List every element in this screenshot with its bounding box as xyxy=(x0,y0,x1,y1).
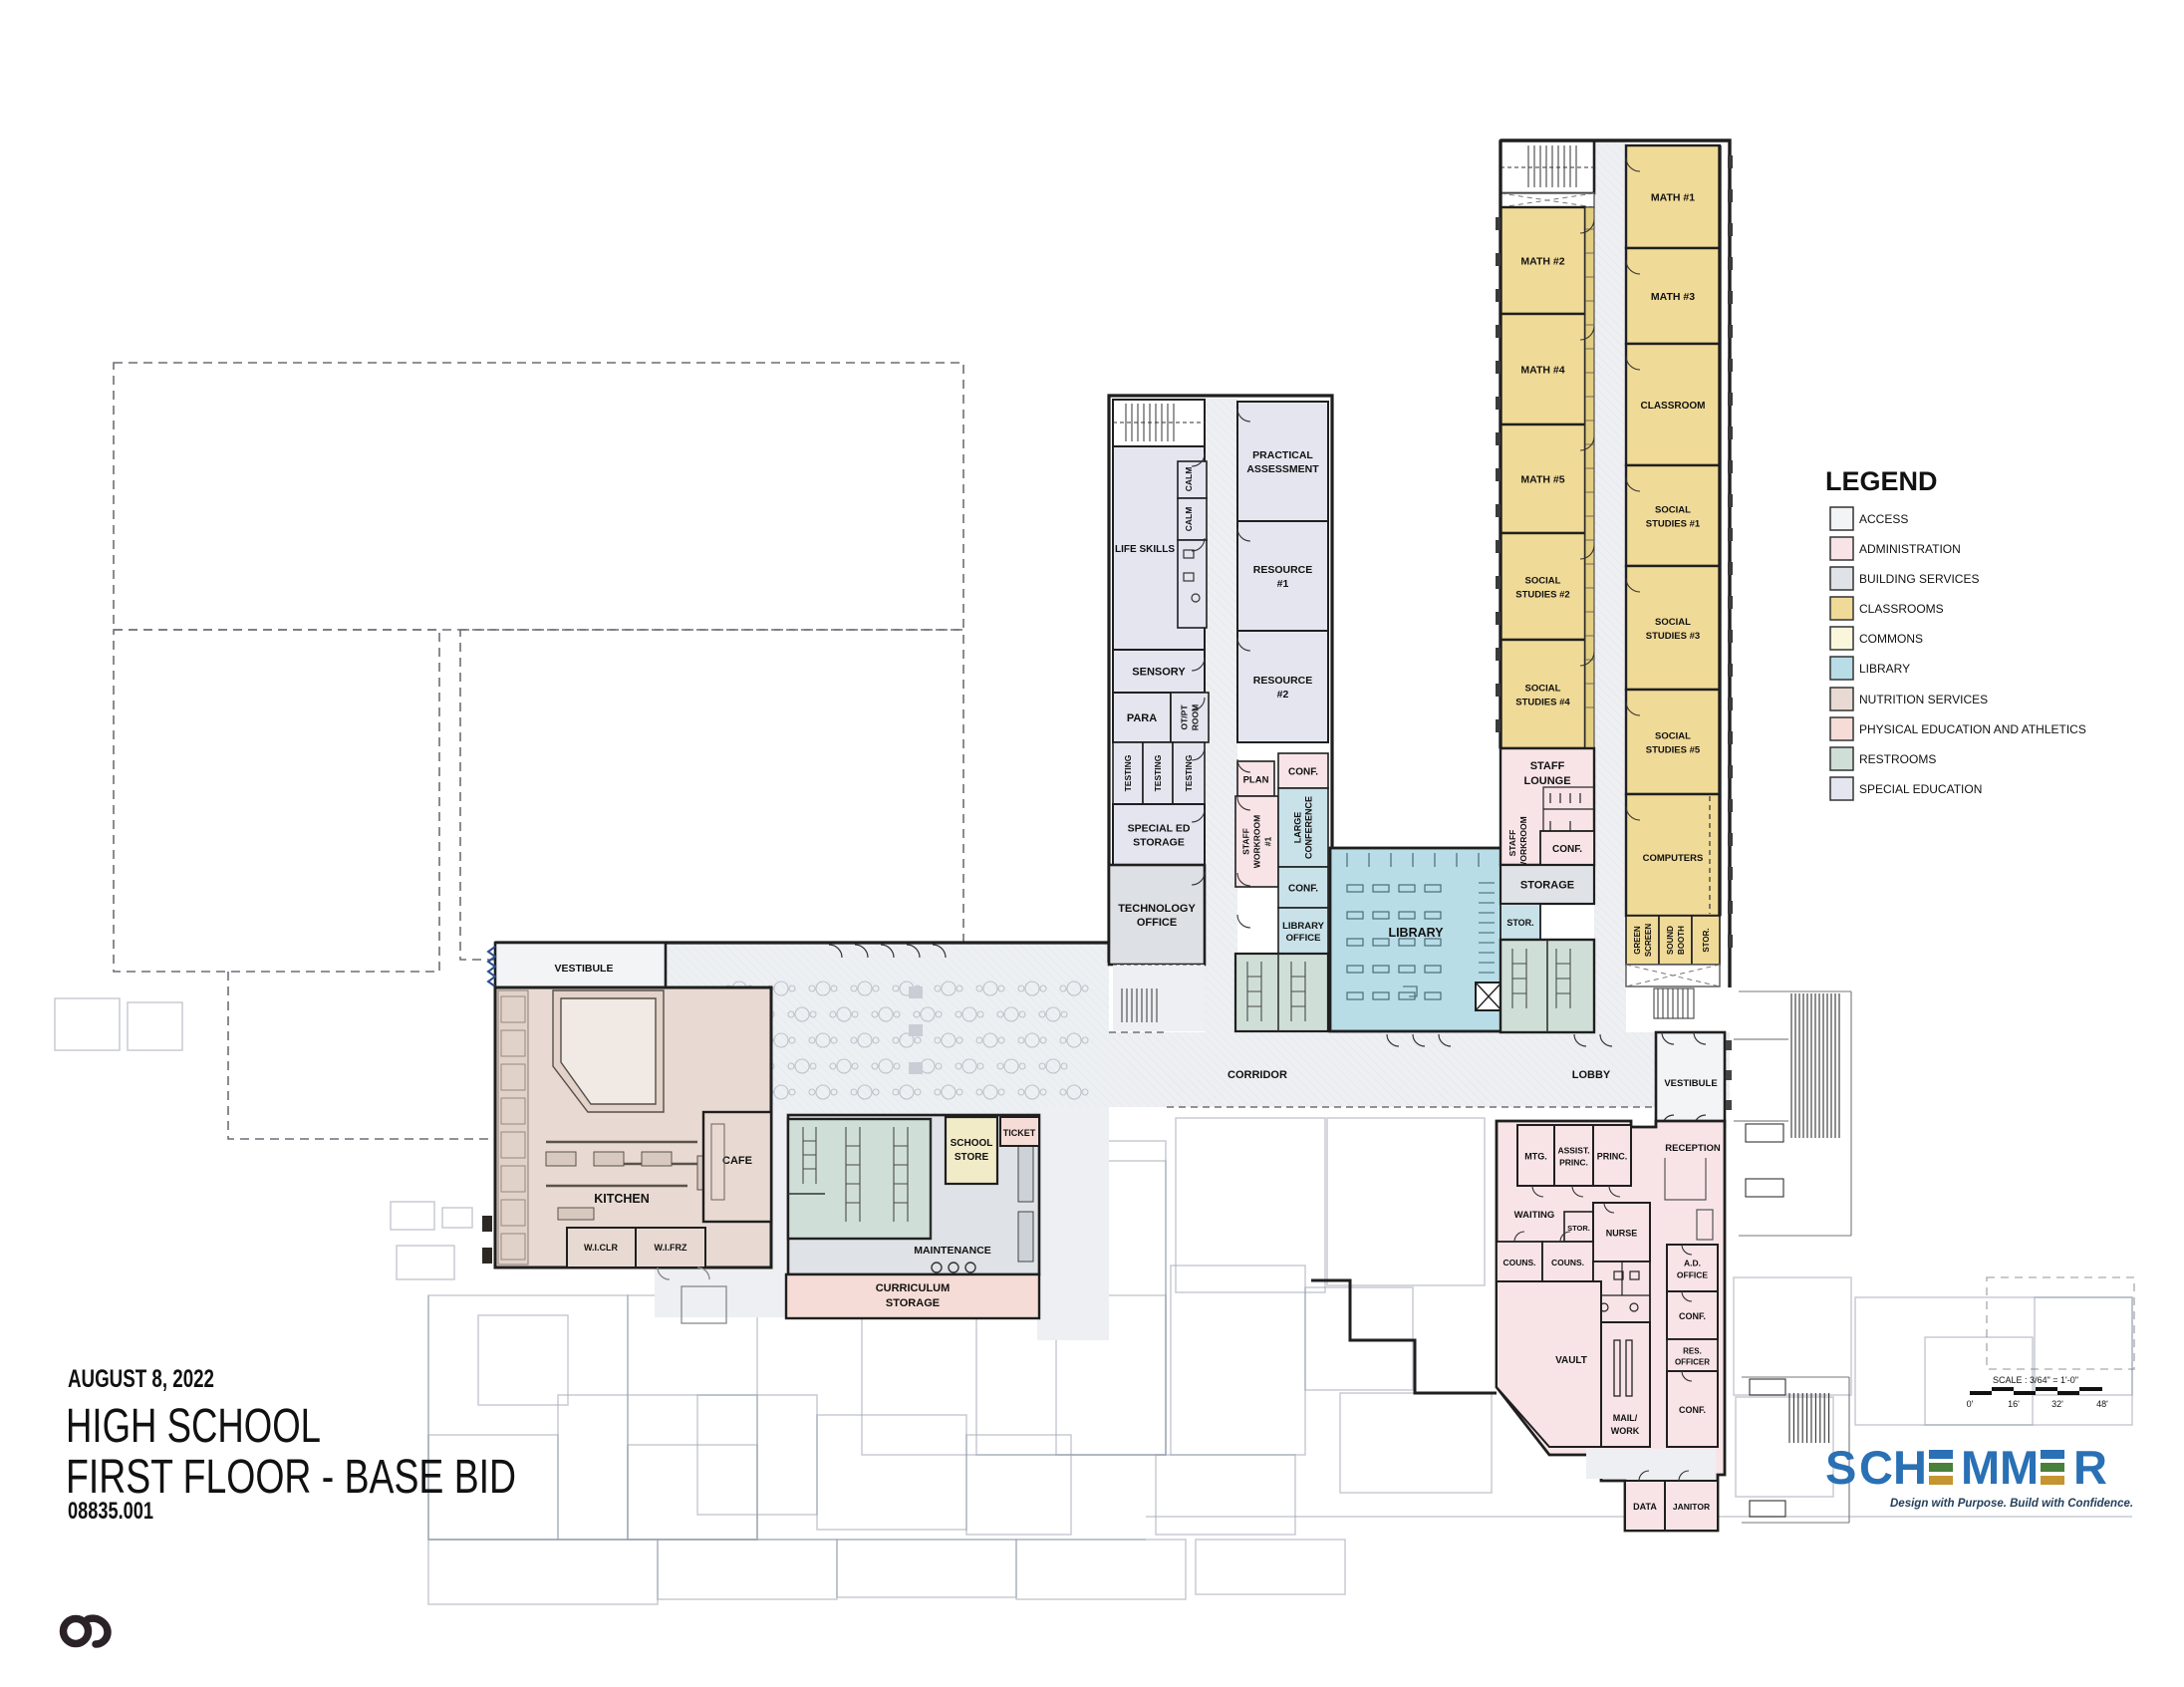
svg-text:COMPUTERS: COMPUTERS xyxy=(1643,853,1704,864)
svg-text:TESTING: TESTING xyxy=(1153,754,1163,791)
svg-text:48': 48' xyxy=(2096,1399,2108,1409)
svg-text:C: C xyxy=(1859,1441,1893,1494)
svg-text:#1: #1 xyxy=(1263,837,1273,847)
svg-text:TICKET: TICKET xyxy=(1003,1128,1036,1138)
svg-text:KITCHEN: KITCHEN xyxy=(594,1192,650,1206)
svg-text:CURRICULUM: CURRICULUM xyxy=(876,1282,951,1294)
svg-text:SCREEN: SCREEN xyxy=(1644,924,1653,958)
svg-text:LIBRARY: LIBRARY xyxy=(1859,662,1910,676)
svg-text:BUILDING SERVICES: BUILDING SERVICES xyxy=(1859,572,1979,586)
svg-text:MTG.: MTG. xyxy=(1524,1152,1547,1162)
svg-text:ASSIST.: ASSIST. xyxy=(1557,1146,1589,1156)
svg-text:FIRST FLOOR - BASE BID: FIRST FLOOR - BASE BID xyxy=(66,1451,516,1504)
svg-text:GREEN: GREEN xyxy=(1633,926,1642,955)
svg-text:WAITING: WAITING xyxy=(1514,1210,1555,1221)
svg-text:MATH #1: MATH #1 xyxy=(1651,192,1695,204)
svg-text:CAFE: CAFE xyxy=(722,1155,752,1167)
svg-text:SCALE : 3/64" = 1'-0": SCALE : 3/64" = 1'-0" xyxy=(1993,1375,2078,1385)
svg-text:WORKROOM: WORKROOM xyxy=(1252,815,1262,868)
svg-text:PRINC.: PRINC. xyxy=(1597,1152,1628,1162)
svg-text:SOUND: SOUND xyxy=(1666,926,1675,955)
svg-text:LOBBY: LOBBY xyxy=(1572,1069,1611,1081)
svg-text:LIFE SKILLS: LIFE SKILLS xyxy=(1115,544,1175,555)
svg-text:CONF.: CONF. xyxy=(1679,1405,1706,1415)
svg-text:RESOURCE: RESOURCE xyxy=(1253,675,1313,687)
svg-text:SOCIAL: SOCIAL xyxy=(1655,505,1691,516)
svg-text:STOR.: STOR. xyxy=(1567,1224,1590,1233)
svg-text:RESTROOMS: RESTROOMS xyxy=(1859,752,1936,766)
svg-text:RES.: RES. xyxy=(1683,1347,1702,1356)
svg-text:JANITOR: JANITOR xyxy=(1673,1502,1710,1512)
svg-text:CLASSROOMS: CLASSROOMS xyxy=(1859,602,1944,616)
svg-text:STORAGE: STORAGE xyxy=(1520,880,1574,892)
svg-text:ACCESS: ACCESS xyxy=(1859,512,1908,526)
svg-text:LIBRARY: LIBRARY xyxy=(1282,921,1325,932)
svg-text:COUNS.: COUNS. xyxy=(1502,1258,1535,1267)
svg-text:OFFICE: OFFICE xyxy=(1137,917,1177,929)
svg-text:OFFICE: OFFICE xyxy=(1677,1270,1708,1280)
svg-text:CONF.: CONF. xyxy=(1552,844,1582,855)
svg-text:W.I.CLR: W.I.CLR xyxy=(584,1243,618,1253)
svg-text:WORKROOM: WORKROOM xyxy=(1518,816,1528,869)
svg-text:SCHOOL: SCHOOL xyxy=(951,1138,993,1149)
svg-text:SPECIAL EDUCATION: SPECIAL EDUCATION xyxy=(1859,782,1982,796)
svg-text:MATH #3: MATH #3 xyxy=(1651,291,1695,303)
svg-text:HIGH SCHOOL: HIGH SCHOOL xyxy=(66,1400,321,1453)
svg-text:W.I.FRZ: W.I.FRZ xyxy=(655,1243,687,1253)
svg-text:LOUNGE: LOUNGE xyxy=(1523,775,1570,787)
svg-text:Design with Purpose. Build wit: Design with Purpose. Build with Confiden… xyxy=(1890,1498,2133,1510)
svg-text:OFFICER: OFFICER xyxy=(1675,1358,1710,1367)
svg-text:MAINTENANCE: MAINTENANCE xyxy=(914,1245,991,1257)
svg-text:S: S xyxy=(1825,1441,1856,1494)
svg-text:SOCIAL: SOCIAL xyxy=(1525,576,1561,587)
svg-text:COMMONS: COMMONS xyxy=(1859,632,1923,646)
svg-text:VESTIBULE: VESTIBULE xyxy=(555,963,614,975)
svg-text:CALM: CALM xyxy=(1184,507,1194,532)
svg-text:STAFF: STAFF xyxy=(1530,760,1565,772)
svg-text:MAIL/: MAIL/ xyxy=(1613,1413,1638,1423)
svg-text:32': 32' xyxy=(2051,1399,2063,1409)
svg-text:PRINC.: PRINC. xyxy=(1559,1158,1588,1168)
svg-text:CALM: CALM xyxy=(1184,467,1194,492)
svg-text:DATA: DATA xyxy=(1633,1502,1657,1512)
svg-text:ASSESSMENT: ASSESSMENT xyxy=(1246,463,1319,475)
svg-text:AUGUST 8, 2022: AUGUST 8, 2022 xyxy=(68,1365,214,1393)
svg-text:H: H xyxy=(1893,1441,1927,1494)
svg-text:RESOURCE: RESOURCE xyxy=(1253,564,1313,576)
svg-text:OT/PT: OT/PT xyxy=(1180,704,1190,730)
svg-text:STAFF: STAFF xyxy=(1241,828,1251,855)
svg-text:STOR.: STOR. xyxy=(1702,928,1711,952)
svg-text:STUDIES #3: STUDIES #3 xyxy=(1646,631,1700,642)
svg-text:A.D.: A.D. xyxy=(1684,1259,1701,1268)
svg-text:STORE: STORE xyxy=(955,1152,989,1163)
svg-text:VAULT: VAULT xyxy=(1555,1355,1587,1366)
svg-text:PRACTICAL: PRACTICAL xyxy=(1252,449,1313,461)
svg-text:MATH #2: MATH #2 xyxy=(1520,256,1564,268)
svg-text:PHYSICAL EDUCATION AND ATHLETI: PHYSICAL EDUCATION AND ATHLETICS xyxy=(1859,722,2086,736)
svg-text:16': 16' xyxy=(2008,1399,2020,1409)
svg-text:MATH #4: MATH #4 xyxy=(1520,365,1564,377)
svg-text:CONF.: CONF. xyxy=(1288,884,1318,895)
svg-text:SENSORY: SENSORY xyxy=(1132,667,1186,679)
svg-text:STORAGE: STORAGE xyxy=(886,1297,940,1309)
svg-text:STUDIES #1: STUDIES #1 xyxy=(1646,519,1701,530)
svg-text:CONFERENCE: CONFERENCE xyxy=(1304,796,1314,859)
svg-text:LEGEND: LEGEND xyxy=(1825,466,1938,496)
svg-text:CORRIDOR: CORRIDOR xyxy=(1228,1069,1287,1081)
svg-text:STAFF: STAFF xyxy=(1507,830,1517,857)
svg-text:R: R xyxy=(2073,1441,2107,1494)
svg-text:COUNS.: COUNS. xyxy=(1551,1258,1584,1267)
svg-text:LARGE: LARGE xyxy=(1293,812,1303,844)
svg-text:NURSE: NURSE xyxy=(1606,1229,1638,1239)
svg-text:SPECIAL ED: SPECIAL ED xyxy=(1128,823,1191,835)
svg-text:OFFICE: OFFICE xyxy=(1286,933,1321,944)
svg-text:SOCIAL: SOCIAL xyxy=(1525,684,1561,695)
svg-text:NUTRITION SERVICES: NUTRITION SERVICES xyxy=(1859,693,1988,706)
svg-text:MATH #5: MATH #5 xyxy=(1520,474,1564,486)
svg-text:TESTING: TESTING xyxy=(1123,754,1133,791)
svg-text:BOOTH: BOOTH xyxy=(1677,926,1686,955)
svg-text:CLASSROOM: CLASSROOM xyxy=(1641,401,1706,412)
svg-text:CONF.: CONF. xyxy=(1288,767,1318,778)
svg-text:M: M xyxy=(1961,1441,2000,1494)
svg-text:TECHNOLOGY: TECHNOLOGY xyxy=(1118,903,1196,915)
svg-text:LIBRARY: LIBRARY xyxy=(1388,926,1444,940)
svg-text:VESTIBULE: VESTIBULE xyxy=(1664,1078,1717,1089)
svg-text:WORK: WORK xyxy=(1611,1426,1640,1436)
svg-text:STUDIES #5: STUDIES #5 xyxy=(1646,745,1701,756)
svg-text:M: M xyxy=(2000,1441,2039,1494)
svg-text:SOCIAL: SOCIAL xyxy=(1655,617,1691,628)
svg-text:STORAGE: STORAGE xyxy=(1133,837,1185,849)
svg-text:#1: #1 xyxy=(1277,578,1289,590)
svg-text:CONF.: CONF. xyxy=(1679,1311,1706,1321)
svg-text:ADMINISTRATION: ADMINISTRATION xyxy=(1859,542,1961,556)
svg-text:PARA: PARA xyxy=(1127,712,1157,724)
svg-text:SOCIAL: SOCIAL xyxy=(1655,731,1691,742)
svg-text:PLAN: PLAN xyxy=(1243,775,1269,786)
svg-text:STUDIES #4: STUDIES #4 xyxy=(1515,698,1570,708)
svg-text:STUDIES #2: STUDIES #2 xyxy=(1515,590,1569,601)
svg-text:STOR.: STOR. xyxy=(1506,918,1533,928)
svg-text:RECEPTION: RECEPTION xyxy=(1665,1143,1721,1154)
svg-text:08835.001: 08835.001 xyxy=(68,1498,153,1525)
svg-text:#2: #2 xyxy=(1277,689,1289,701)
svg-text:0': 0' xyxy=(1967,1399,1974,1409)
